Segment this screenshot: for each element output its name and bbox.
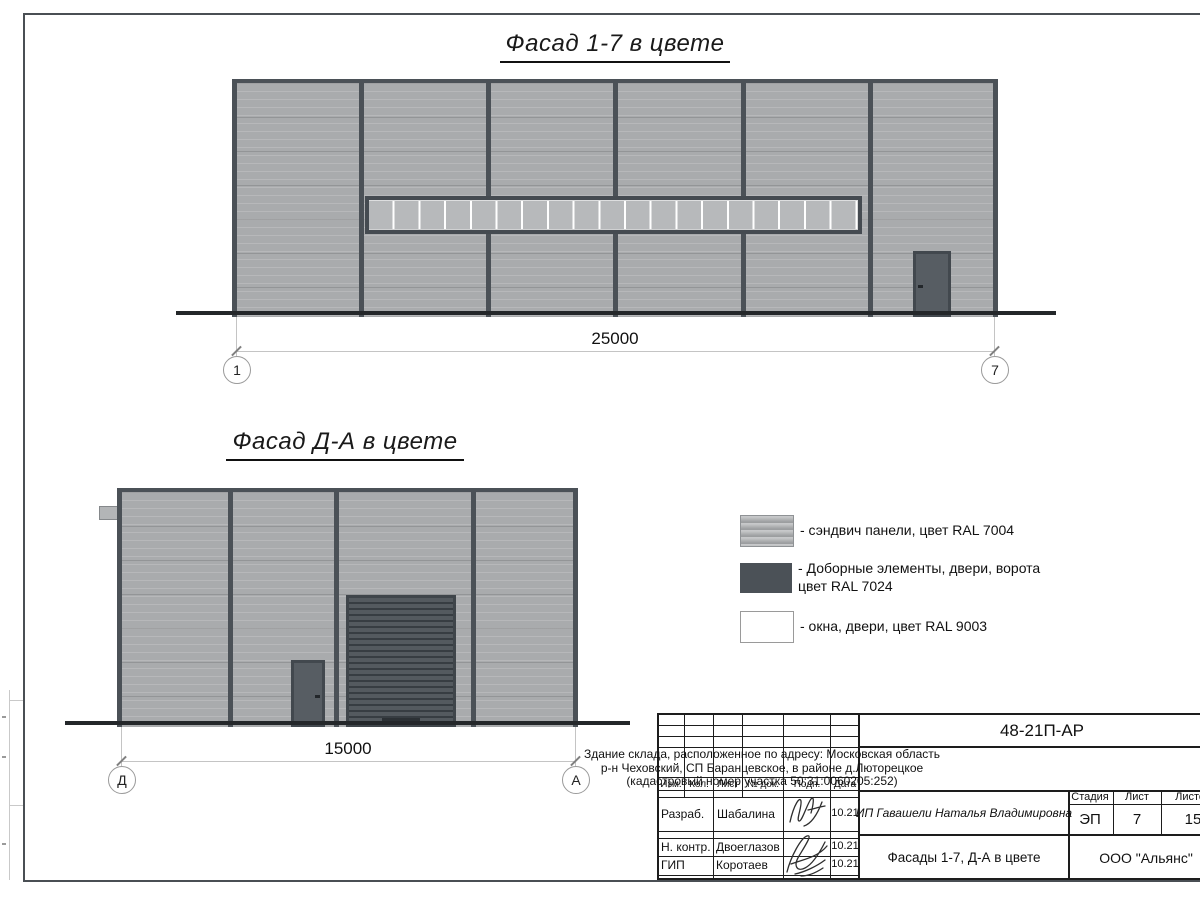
facade-d-a-drawing xyxy=(117,488,578,727)
tb-sheets-label: Листов xyxy=(1175,791,1200,803)
door-handle xyxy=(918,285,923,288)
tb-address-line2: р-н Чеховский, СП Баранцевское, в районе… xyxy=(482,762,1042,776)
tb-row3-role: ГИП xyxy=(661,858,685,872)
legend-label-windows: - окна, двери, цвет RAL 9003 xyxy=(800,611,987,641)
dimension-line xyxy=(236,351,995,352)
ground-line-facade-1-7 xyxy=(176,311,1056,315)
column-axis-7 xyxy=(993,79,998,317)
column-axis-b xyxy=(471,488,476,727)
tb-row1-date: 10.21 xyxy=(831,807,859,819)
tb-row3-date: 10.21 xyxy=(831,858,859,870)
grid-bubble-7: 7 xyxy=(981,356,1009,384)
tb-row1-name: Шабалина xyxy=(717,807,775,821)
left-margin-divider xyxy=(9,700,23,701)
tb-stage-value: ЭП xyxy=(1079,811,1101,828)
facade-d-a-title: Фасад Д-А в цвете xyxy=(180,428,510,461)
column-axis-v xyxy=(334,488,339,727)
tb-address-line1: Здание склада, расположенное по адресу: … xyxy=(482,748,1042,762)
roller-gate xyxy=(346,595,456,727)
tb-line xyxy=(1113,790,1114,834)
legend-swatch-windows xyxy=(740,611,794,643)
grid-bubble-d: Д xyxy=(108,766,136,794)
tb-row2-name: Двоеглазов xyxy=(716,840,780,854)
tb-client: ИП Гавашели Наталья Владимировна xyxy=(856,806,1072,820)
tb-line xyxy=(713,713,714,880)
tb-line xyxy=(1161,790,1162,834)
column-axis-d xyxy=(117,488,122,727)
tb-line xyxy=(1068,790,1070,880)
tb-sheet-label: Лист xyxy=(1125,791,1149,803)
facade-1-7-drawing xyxy=(232,79,998,317)
tb-company: ООО "Альянс" xyxy=(1099,850,1193,866)
ribbon-window-band xyxy=(365,196,862,234)
legend-label-sandwich-panel: - сэндвич панели, цвет RAL 7004 xyxy=(800,515,1014,545)
tb-row1-role: Разраб. xyxy=(661,807,704,821)
ground-line-facade-d-a xyxy=(65,721,630,725)
entrance-door-facade-d-a xyxy=(291,660,325,727)
tb-line xyxy=(860,790,1200,792)
column-axis-2 xyxy=(359,79,364,317)
column-axis-6 xyxy=(868,79,873,317)
tb-row2-role: Н. контр. xyxy=(661,840,711,854)
tb-line xyxy=(858,713,860,880)
left-margin-mark xyxy=(2,716,6,718)
dimension-value-facade-d-a: 15000 xyxy=(198,739,498,759)
tb-project-address: Здание склада, расположенное по адресу: … xyxy=(482,748,1042,789)
legend-label-dark-elements: - Доборные элементы, двери, ворота цвет … xyxy=(798,559,1040,595)
legend-label-line1: - Доборные элементы, двери, ворота xyxy=(798,559,1040,577)
tb-stage-label: Стадия xyxy=(1071,791,1109,803)
tb-sheet-value: 7 xyxy=(1133,811,1141,828)
left-margin-mark xyxy=(2,756,6,758)
tb-row3-name: Коротаев xyxy=(716,858,768,872)
tb-line xyxy=(860,834,1200,836)
signature-dvoeglazov-korotaev xyxy=(781,832,833,878)
tb-address-line3: (кадастровый номер участка 50:31:0060205… xyxy=(482,775,1042,789)
column-axis-1 xyxy=(232,79,237,317)
legend-swatch-dark-elements xyxy=(740,563,792,593)
column-axis-a xyxy=(573,488,578,727)
door-handle xyxy=(315,695,320,698)
column-axis-g xyxy=(228,488,233,727)
signature-shabalina xyxy=(786,794,828,830)
legend-label-line2: цвет RAL 7024 xyxy=(798,577,1040,595)
tb-sheet-title: Фасады 1-7, Д-А в цвете xyxy=(887,850,1040,865)
entrance-door-facade-1-7 xyxy=(913,251,951,317)
left-margin-mark xyxy=(2,843,6,845)
tb-line xyxy=(1068,804,1200,805)
grid-bubble-1: 1 xyxy=(223,356,251,384)
facade-1-7-title: Фасад 1-7 в цвете xyxy=(380,30,850,63)
tb-row2-date: 10.21 xyxy=(831,840,859,852)
legend-swatch-sandwich-panel xyxy=(740,515,794,547)
tb-sheets-value: 15 xyxy=(1185,811,1200,828)
tb-doc-number: 48-21П-АР xyxy=(1000,721,1084,741)
left-margin-line xyxy=(9,690,10,880)
left-margin-divider xyxy=(9,805,23,806)
dimension-value-facade-1-7: 25000 xyxy=(465,329,765,349)
